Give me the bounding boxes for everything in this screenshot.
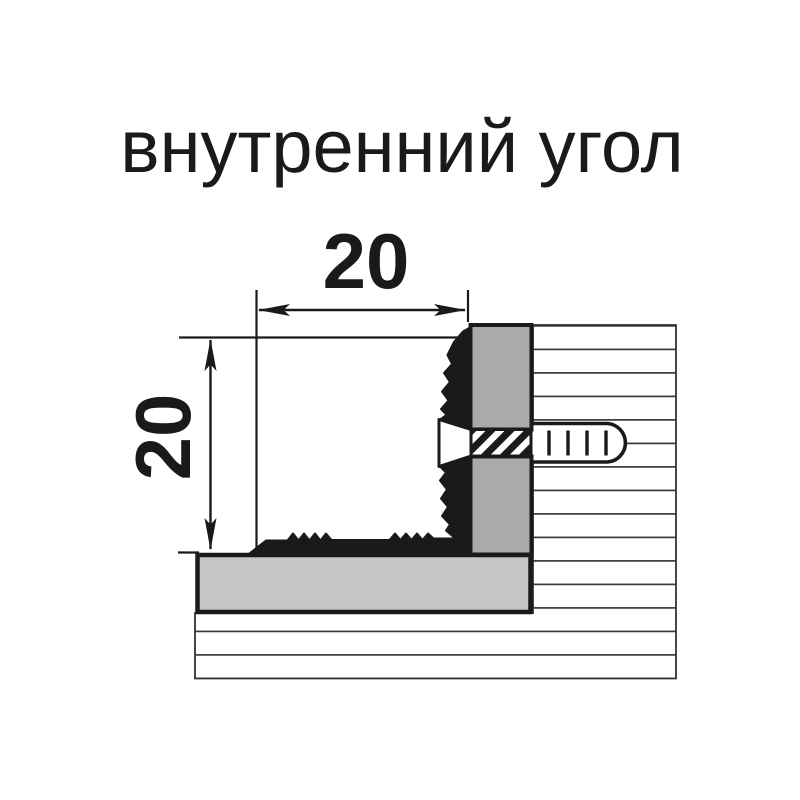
wall-block-lower xyxy=(471,457,532,555)
height-dimension-label: 20 xyxy=(119,394,207,481)
page-title: внутренний угол xyxy=(120,105,683,188)
dowel-anchor xyxy=(529,424,625,463)
dowel-body xyxy=(529,424,625,463)
diagram-page: 20 20 внутренний угол xyxy=(0,0,800,800)
technical-drawing: 20 20 внутренний угол xyxy=(0,0,800,800)
floor-slab xyxy=(198,555,531,612)
screw-shank xyxy=(470,430,531,457)
width-dimension-label: 20 xyxy=(323,217,410,305)
wall-block-upper xyxy=(471,325,532,430)
